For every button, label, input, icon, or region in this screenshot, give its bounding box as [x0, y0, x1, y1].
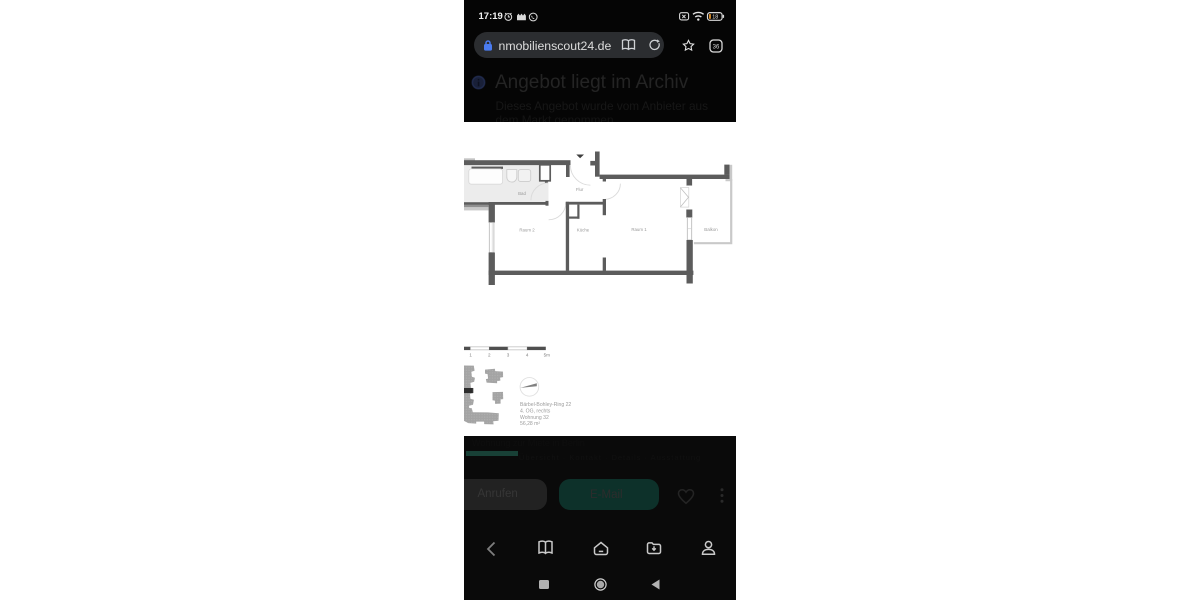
- svg-text:1: 1: [469, 353, 472, 358]
- svg-text:5m: 5m: [544, 353, 551, 358]
- svg-text:Bärbel-Bohley-Ring 22: Bärbel-Bohley-Ring 22: [520, 402, 571, 408]
- svg-text:Flur: Flur: [576, 187, 584, 192]
- svg-text:36: 36: [713, 44, 720, 50]
- svg-text:3: 3: [507, 353, 510, 358]
- svg-text:Bad: Bad: [518, 191, 526, 196]
- svg-text:Balkon: Balkon: [704, 227, 718, 232]
- svg-text:18: 18: [712, 15, 718, 21]
- svg-text:4: 4: [526, 353, 529, 358]
- svg-text:4. OG, rechts: 4. OG, rechts: [520, 408, 551, 414]
- svg-text:Raum 1: Raum 1: [631, 227, 647, 232]
- svg-text:Raum 2: Raum 2: [519, 227, 535, 232]
- svg-text:2: 2: [488, 353, 491, 358]
- svg-text:Küche: Küche: [577, 227, 590, 232]
- svg-text:Wohnung 32: Wohnung 32: [520, 415, 549, 421]
- svg-text:56,28 m²: 56,28 m²: [520, 421, 540, 427]
